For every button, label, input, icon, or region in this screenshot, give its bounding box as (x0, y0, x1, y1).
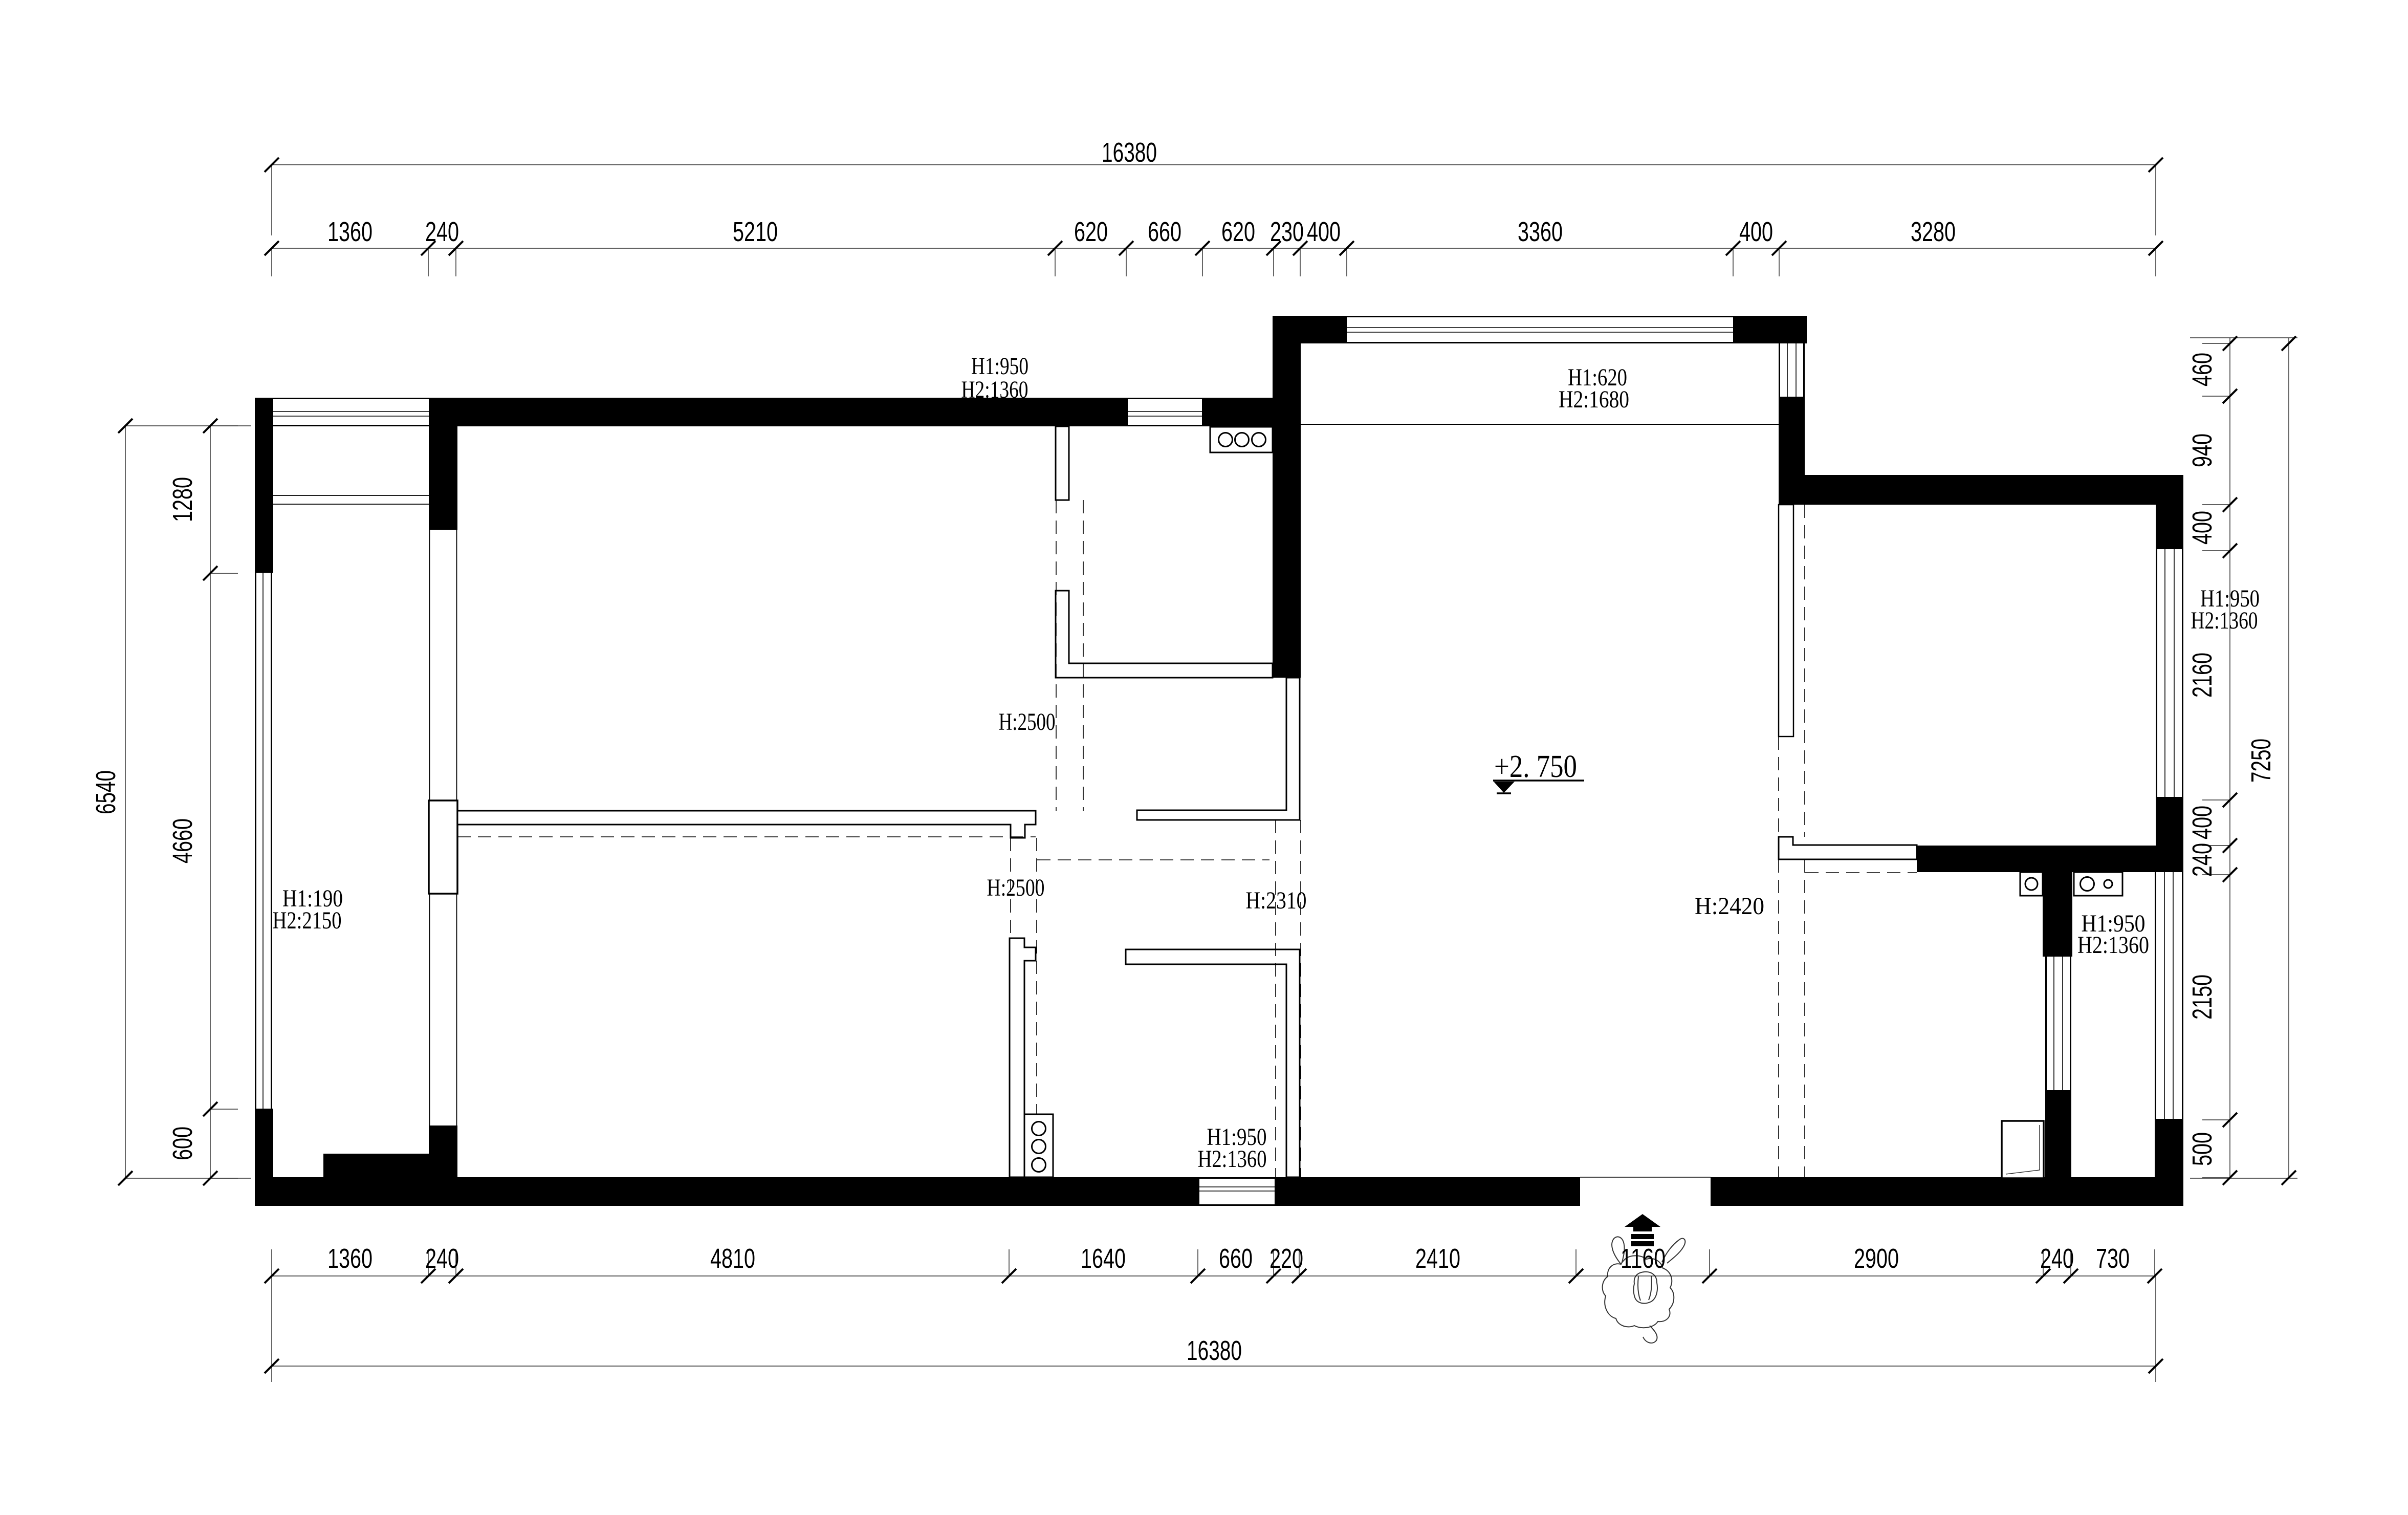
svg-text:500: 500 (2187, 1132, 2218, 1166)
svg-text:16380: 16380 (1187, 1335, 1242, 1366)
svg-text:400: 400 (2187, 511, 2218, 545)
svg-text:240: 240 (2187, 843, 2218, 877)
svg-text:3280: 3280 (1911, 217, 1956, 247)
svg-text:16380: 16380 (1102, 137, 1157, 168)
svg-text:H2:1360: H2:1360 (2191, 607, 2258, 634)
svg-text:H2:1360: H2:1360 (961, 376, 1028, 403)
svg-text:620: 620 (1074, 217, 1108, 247)
svg-text:1280: 1280 (167, 477, 198, 522)
svg-text:H2:1680: H2:1680 (1559, 386, 1629, 413)
svg-text:4660: 4660 (167, 818, 198, 863)
svg-text:5210: 5210 (733, 217, 778, 247)
svg-text:4810: 4810 (710, 1243, 755, 1274)
svg-text:460: 460 (2187, 353, 2218, 386)
svg-text:2150: 2150 (2187, 975, 2218, 1020)
svg-text:3360: 3360 (1518, 217, 1563, 247)
svg-text:1360: 1360 (327, 1243, 373, 1274)
svg-text:400: 400 (1739, 217, 1773, 247)
svg-text:240: 240 (2040, 1243, 2074, 1274)
svg-text:H:2420: H:2420 (1695, 893, 1764, 920)
svg-text:240: 240 (425, 1243, 459, 1274)
svg-text:2410: 2410 (1415, 1243, 1460, 1274)
svg-text:730: 730 (2096, 1243, 2130, 1274)
svg-text:6540: 6540 (91, 770, 121, 814)
svg-text:7250: 7250 (2246, 739, 2276, 783)
svg-text:1640: 1640 (1081, 1243, 1126, 1274)
svg-text:H:2500: H:2500 (999, 708, 1056, 735)
svg-text:2160: 2160 (2187, 653, 2218, 698)
svg-text:600: 600 (167, 1127, 198, 1160)
svg-text:+2. 750: +2. 750 (1494, 749, 1577, 784)
svg-text:620: 620 (1221, 217, 1255, 247)
svg-text:H:2500: H:2500 (987, 874, 1045, 901)
svg-text:H2:2150: H2:2150 (273, 907, 342, 934)
svg-text:1360: 1360 (327, 217, 373, 247)
svg-text:400: 400 (1307, 217, 1341, 247)
svg-text:660: 660 (1219, 1243, 1253, 1274)
svg-text:230: 230 (1270, 217, 1304, 247)
svg-text:240: 240 (425, 217, 459, 247)
svg-text:H2:1360: H2:1360 (1198, 1145, 1267, 1173)
svg-text:H2:1360: H2:1360 (2077, 932, 2149, 959)
svg-text:1160: 1160 (1621, 1243, 1666, 1274)
svg-text:940: 940 (2187, 434, 2218, 467)
svg-text:660: 660 (1148, 217, 1181, 247)
svg-text:220: 220 (1269, 1243, 1303, 1274)
svg-text:H:2310: H:2310 (1246, 887, 1307, 914)
svg-text:2900: 2900 (1854, 1243, 1899, 1274)
svg-text:400: 400 (2187, 806, 2218, 839)
